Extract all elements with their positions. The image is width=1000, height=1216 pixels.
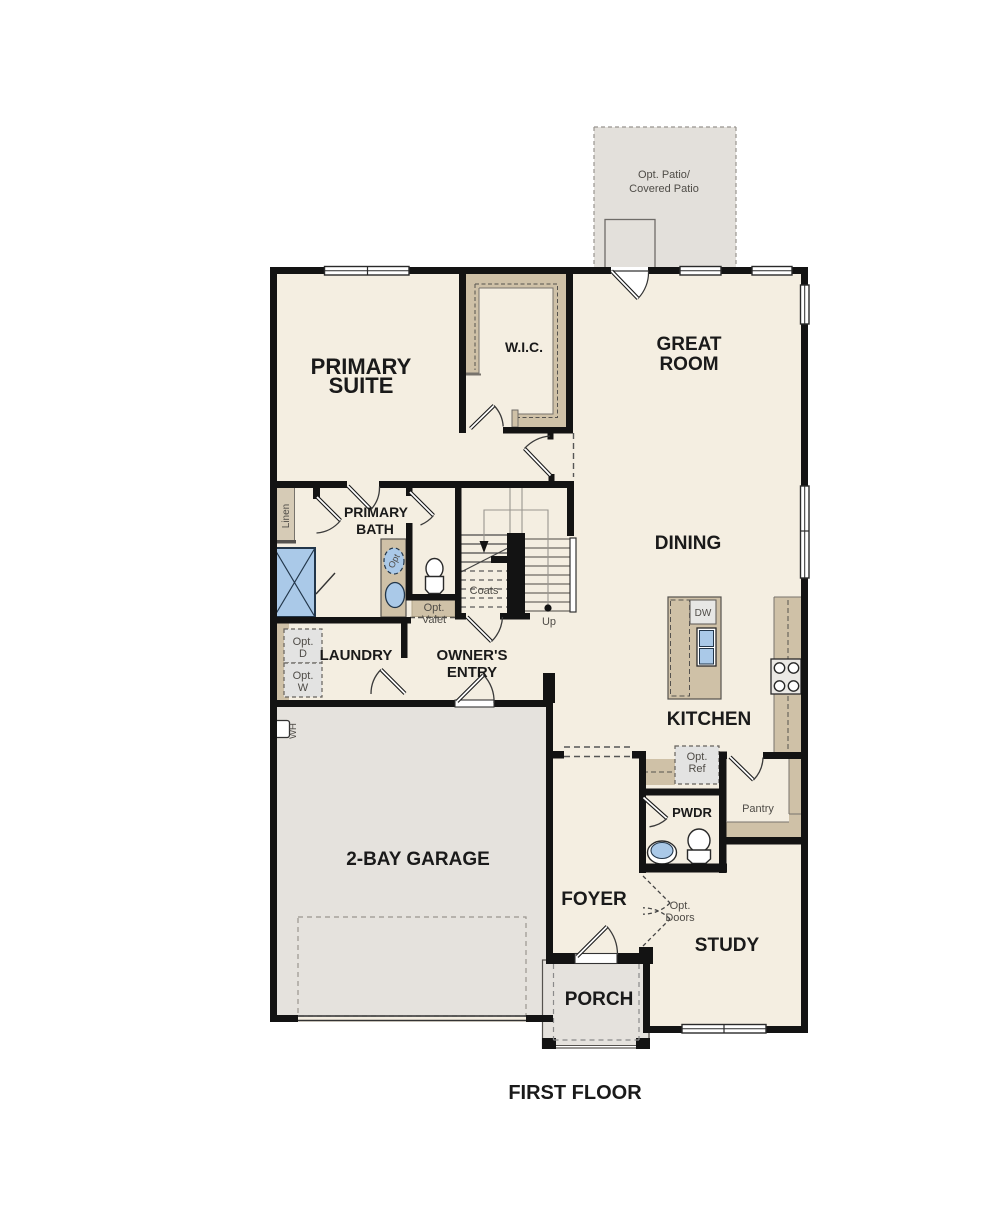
svg-text:DINING: DINING (655, 533, 722, 554)
svg-text:D: D (299, 648, 307, 660)
svg-text:STUDY: STUDY (695, 935, 760, 956)
svg-text:PRIMARY: PRIMARY (344, 504, 409, 520)
svg-text:Coats: Coats (470, 585, 499, 597)
svg-text:W: W (298, 682, 309, 694)
svg-text:Opt. Patio/: Opt. Patio/ (638, 169, 691, 181)
svg-text:Opt.: Opt. (293, 670, 314, 682)
svg-text:Valet: Valet (422, 614, 446, 626)
svg-text:KITCHEN: KITCHEN (667, 709, 751, 730)
svg-text:ROOM: ROOM (659, 354, 718, 375)
svg-text:Up: Up (542, 616, 556, 628)
svg-text:WH: WH (288, 723, 299, 739)
svg-text:Opt.: Opt. (293, 636, 314, 648)
svg-text:Covered Patio: Covered Patio (629, 183, 699, 195)
svg-text:Opt.: Opt. (424, 602, 445, 614)
svg-text:Pantry: Pantry (742, 803, 774, 815)
svg-text:SUITE: SUITE (329, 373, 394, 398)
svg-text:LAUNDRY: LAUNDRY (320, 647, 393, 664)
svg-text:2-BAY GARAGE: 2-BAY GARAGE (346, 849, 490, 870)
svg-text:BATH: BATH (356, 521, 394, 537)
svg-text:Linen: Linen (281, 504, 292, 528)
svg-text:Opt.: Opt. (687, 751, 708, 763)
svg-text:Ref: Ref (688, 763, 706, 775)
svg-text:OWNER'S: OWNER'S (436, 647, 507, 664)
svg-text:FOYER: FOYER (561, 889, 627, 910)
svg-text:DW: DW (695, 608, 712, 619)
svg-text:Opt.: Opt. (670, 900, 691, 912)
svg-text:FIRST FLOOR: FIRST FLOOR (508, 1082, 642, 1104)
svg-text:PWDR: PWDR (672, 805, 712, 820)
svg-text:W.I.C.: W.I.C. (505, 339, 543, 355)
svg-text:GREAT: GREAT (656, 334, 721, 355)
svg-text:ENTRY: ENTRY (447, 664, 497, 681)
svg-text:PORCH: PORCH (565, 989, 634, 1010)
svg-text:Doors: Doors (665, 912, 695, 924)
